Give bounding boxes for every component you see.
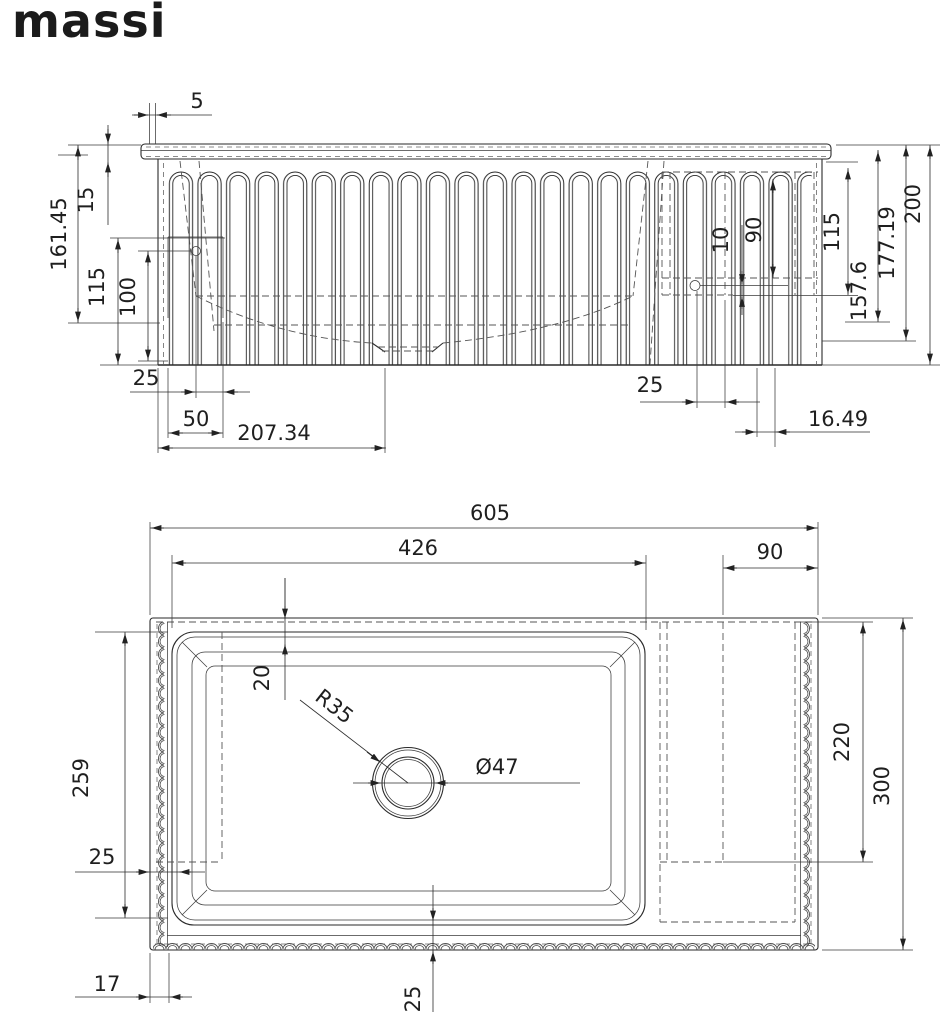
dim-label-right-ledge-height: 90 [742, 217, 766, 244]
dim-label-right-ledge-gap: 10 [709, 227, 733, 254]
front-elevation-view: 5 161.45 15 115 100 25 50 207.34 10 90 1… [47, 89, 940, 453]
dim-label-right-inner-depth: 115 [820, 212, 844, 252]
dim-label-left-bowl-depth: 100 [116, 277, 140, 317]
dim-label-height-total-left: 161.45 [47, 197, 71, 270]
dim-label-width-total: 605 [470, 501, 510, 525]
dim-label-right-height-a: 157.6 [847, 261, 871, 321]
front-rim-outline [141, 144, 831, 159]
dim-label-bottom-right-wall: 25 [637, 373, 664, 397]
plan-flute-band-left [153, 622, 166, 946]
dim-label-rim-to-bowl: 20 [250, 665, 274, 692]
dim-label-bottom-wall: 25 [401, 986, 425, 1013]
dim-label-corner-radius: R35 [311, 684, 358, 728]
dim-label-bowl-width: 426 [398, 536, 438, 560]
dim-label-bottom-left-ledge: 50 [183, 407, 210, 431]
dim-label-left-inner-depth: 115 [85, 267, 109, 307]
front-fluting [167, 160, 812, 365]
plan-flute-band-right [802, 622, 815, 946]
dim-label-rim-overhang: 5 [190, 89, 203, 113]
dim-label-height-total: 200 [901, 184, 925, 224]
drawing-sheet: massi [0, 0, 941, 1020]
plan-bowl [172, 632, 645, 925]
dim-label-bottom-right-inset: 16.49 [808, 407, 868, 431]
dim-label-bowl-length: 259 [69, 758, 93, 798]
dim-label-drainboard-width: 90 [757, 540, 784, 564]
dim-label-drainboard-length: 220 [830, 722, 854, 762]
dim-label-flute-depth: 17 [94, 972, 121, 996]
dim-label-bottom-left-to-drain: 207.34 [237, 421, 310, 445]
dim-label-depth-total: 300 [870, 766, 894, 806]
dim-label-right-height-b: 177.19 [875, 206, 899, 279]
plan-view: 605 426 90 20 R35 Ø47 259 25 17 25 220 3… [69, 501, 913, 1012]
plan-flute-band-bottom [153, 937, 815, 950]
dim-label-left-wall: 25 [89, 845, 116, 869]
technical-drawing: 5 161.45 15 115 100 25 50 207.34 10 90 1… [0, 0, 941, 1020]
dim-label-rim-height: 15 [74, 187, 98, 214]
dim-label-bottom-left-wall: 25 [133, 366, 160, 390]
dim-label-drain-diameter: Ø47 [475, 755, 518, 779]
